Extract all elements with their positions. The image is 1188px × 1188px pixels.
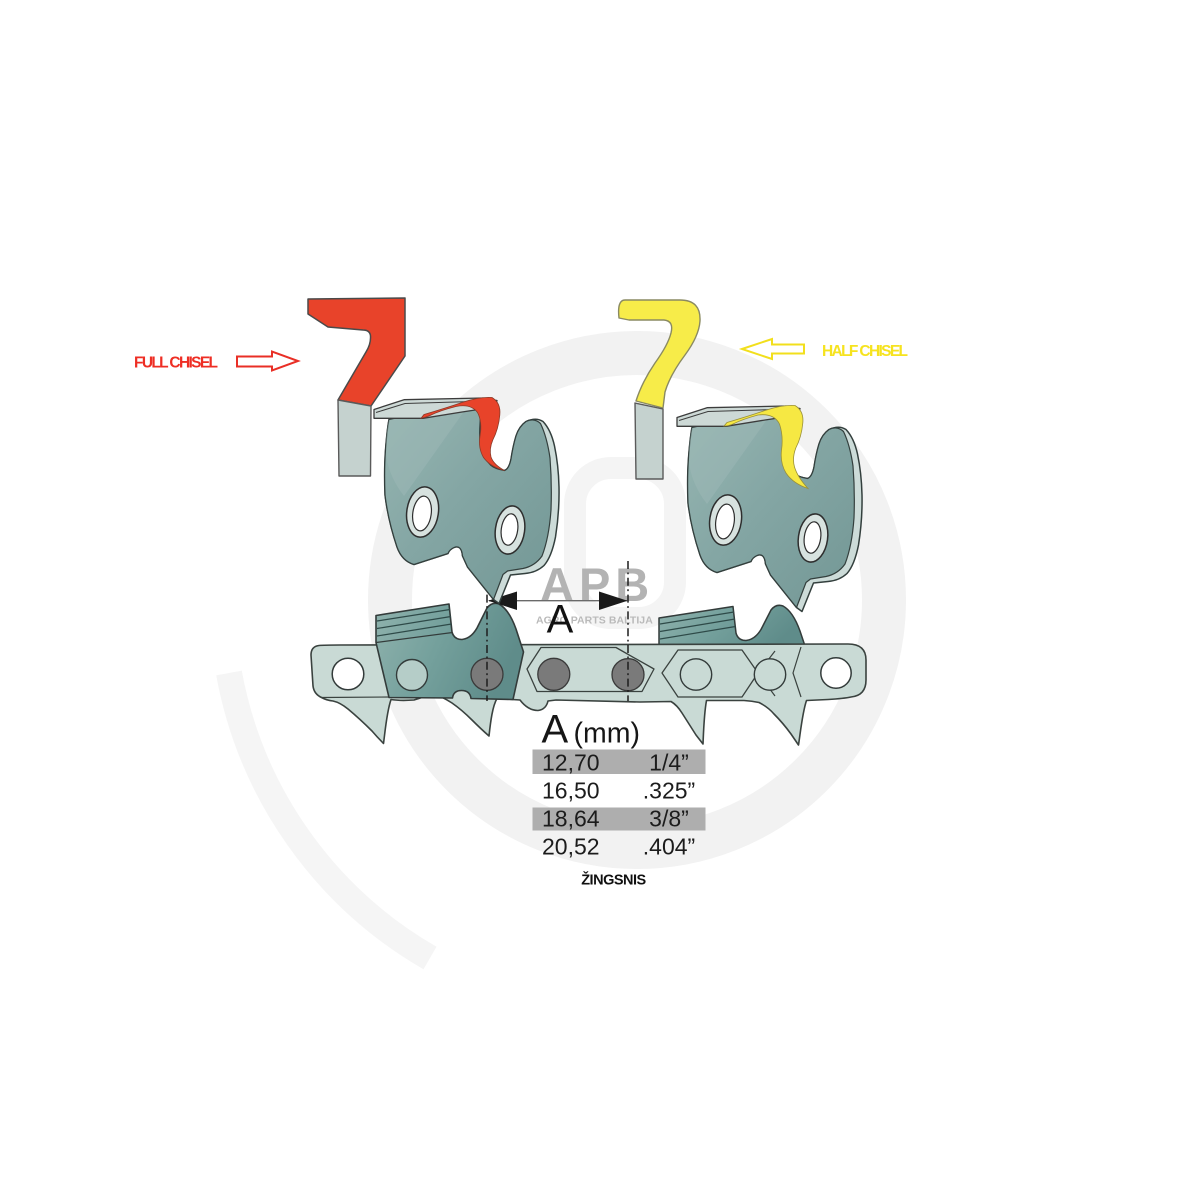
svg-text:12,70: 12,70 xyxy=(542,750,600,776)
svg-text:3/8”: 3/8” xyxy=(649,806,689,832)
svg-text:A: A xyxy=(547,598,574,642)
svg-text:18,64: 18,64 xyxy=(542,806,600,832)
svg-text:16,50: 16,50 xyxy=(542,778,600,804)
svg-text:A: A xyxy=(542,708,569,752)
svg-text:20,52: 20,52 xyxy=(542,834,600,860)
svg-text:1/4”: 1/4” xyxy=(649,750,689,776)
svg-text:FULL CHISEL: FULL CHISEL xyxy=(134,355,218,372)
svg-text:ŽINGSNIS: ŽINGSNIS xyxy=(581,871,646,889)
svg-text:HALF CHISEL: HALF CHISEL xyxy=(822,343,908,360)
svg-text:(mm): (mm) xyxy=(574,718,640,750)
svg-text:.325”: .325” xyxy=(643,778,695,804)
svg-text:.404”: .404” xyxy=(643,834,695,860)
